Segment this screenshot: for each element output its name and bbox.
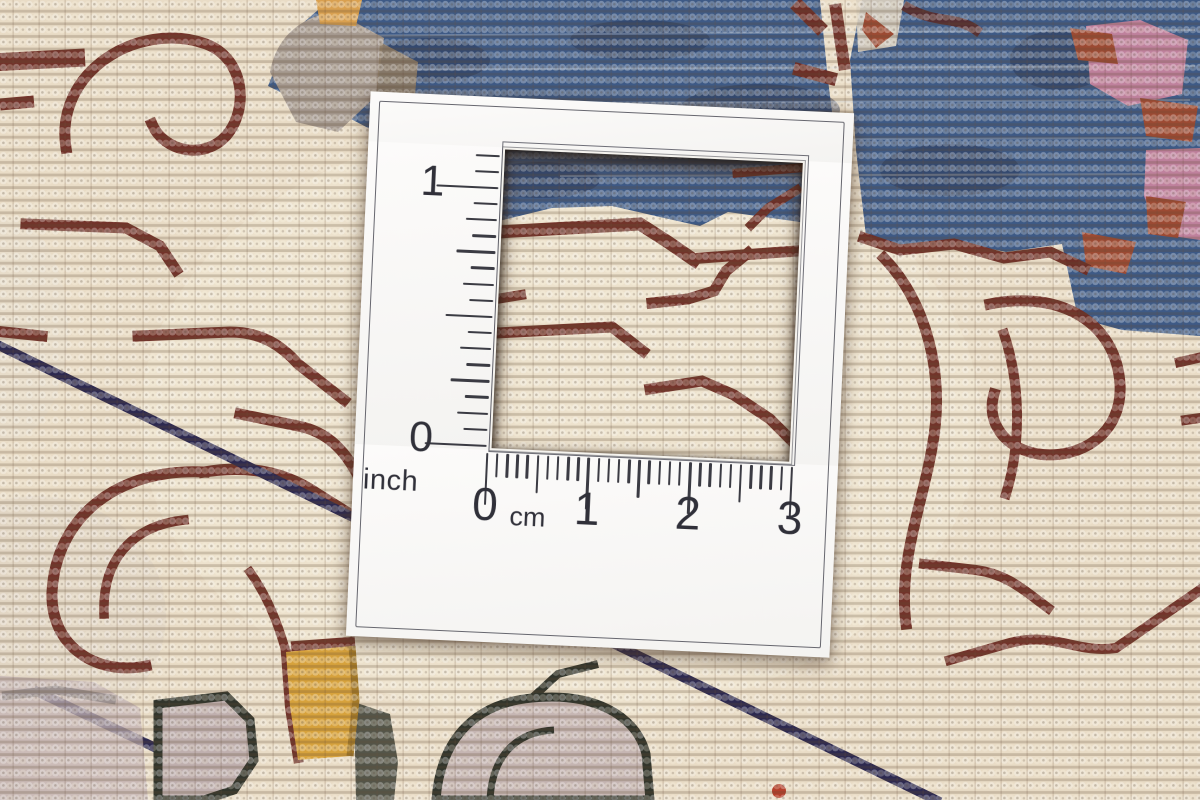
cm-label-3: 3 [776, 494, 804, 541]
carpet-photo: 1 0 inch 0 cm 1 2 3 [0, 0, 1200, 800]
ruler-tick [658, 461, 661, 485]
ruler-tick [556, 456, 559, 480]
cm-unit-label: cm [509, 501, 546, 534]
cm-label-0: 0 [471, 480, 499, 527]
ruler-tick [769, 466, 772, 490]
ruler-tick [678, 462, 681, 486]
ruler-tick [627, 459, 630, 483]
ruler-tick [617, 459, 620, 483]
ruler-tick [495, 453, 498, 477]
ruler-tick [648, 460, 651, 484]
ruler-tick [729, 464, 732, 488]
ruler-tick [719, 464, 722, 488]
ruler-tick [576, 457, 579, 481]
ruler-tick [738, 464, 742, 502]
ruler-tick [668, 461, 671, 485]
cm-label-1: 1 [573, 485, 601, 532]
measuring-window [489, 147, 804, 463]
ruler-tick [749, 465, 752, 489]
cm-label-2: 2 [674, 490, 702, 537]
ruler-tick [516, 454, 519, 478]
ruler-tick [535, 455, 539, 493]
ruler-tick [637, 460, 641, 498]
ruler-tick [566, 457, 569, 481]
ruler-tick [708, 463, 711, 487]
ruler-tick [759, 465, 762, 489]
inch-unit-label: inch [362, 463, 419, 498]
measuring-card: 1 0 inch 0 cm 1 2 3 [346, 91, 854, 657]
ruler-tick [698, 463, 701, 487]
ruler-tick [505, 454, 508, 478]
ruler-tick [526, 455, 529, 479]
ruler-tick [780, 466, 783, 490]
inch-label-1: 1 [374, 158, 446, 204]
ruler-tick [546, 456, 549, 480]
inch-label-0: 0 [362, 413, 434, 459]
ruler-tick [597, 458, 600, 482]
ruler-tick [607, 458, 610, 482]
